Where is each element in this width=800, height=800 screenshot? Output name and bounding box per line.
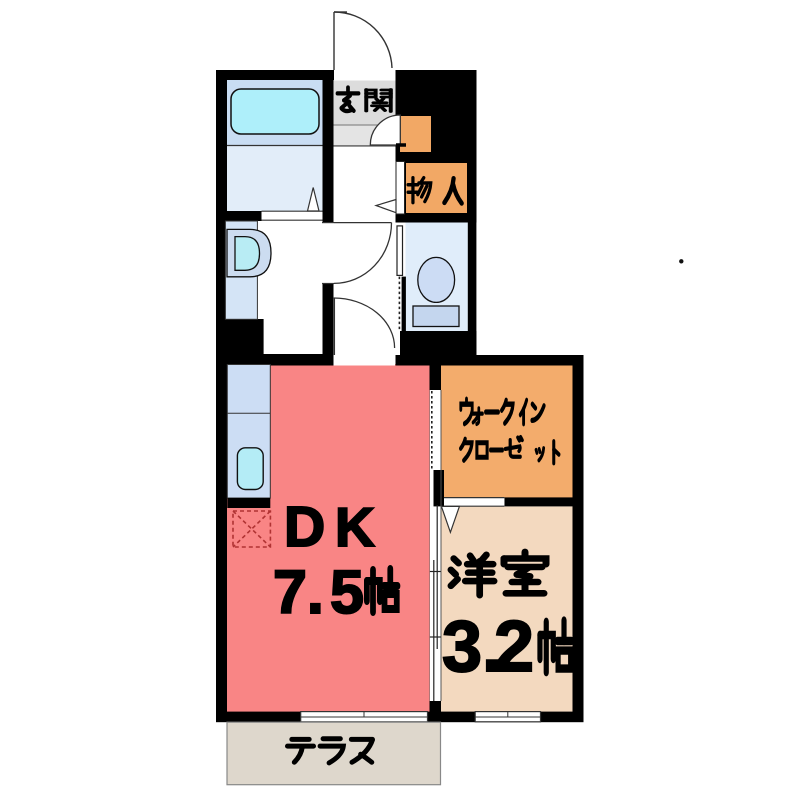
svg-text:7.: 7. — [273, 558, 324, 626]
svg-text:D: D — [284, 495, 325, 559]
svg-text:5: 5 — [330, 558, 364, 626]
svg-text:K: K — [335, 496, 375, 558]
svg-text:2: 2 — [494, 607, 534, 687]
